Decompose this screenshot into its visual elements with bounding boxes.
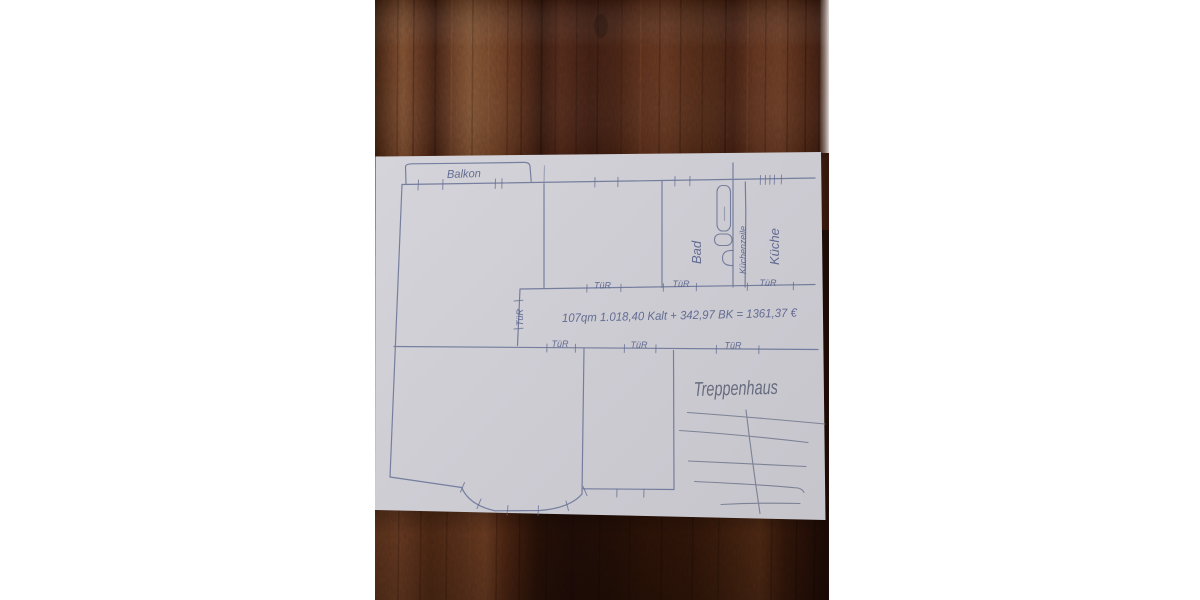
svg-text:TüR: TüR [515, 308, 525, 326]
svg-text:Bad: Bad [689, 240, 704, 264]
svg-text:TüR: TüR [725, 341, 743, 351]
svg-text:Küchenzeile: Küchenzeile [738, 226, 749, 274]
svg-text:Treppenhaus: Treppenhaus [694, 377, 779, 401]
svg-text:TüR: TüR [631, 340, 649, 350]
svg-text:Balkon: Balkon [447, 168, 481, 181]
svg-text:TüR: TüR [673, 279, 691, 289]
svg-text:TüR: TüR [760, 278, 778, 288]
svg-text:TüR: TüR [552, 339, 570, 349]
svg-text:Küche: Küche [767, 228, 782, 265]
svg-text:TüR: TüR [594, 280, 612, 290]
